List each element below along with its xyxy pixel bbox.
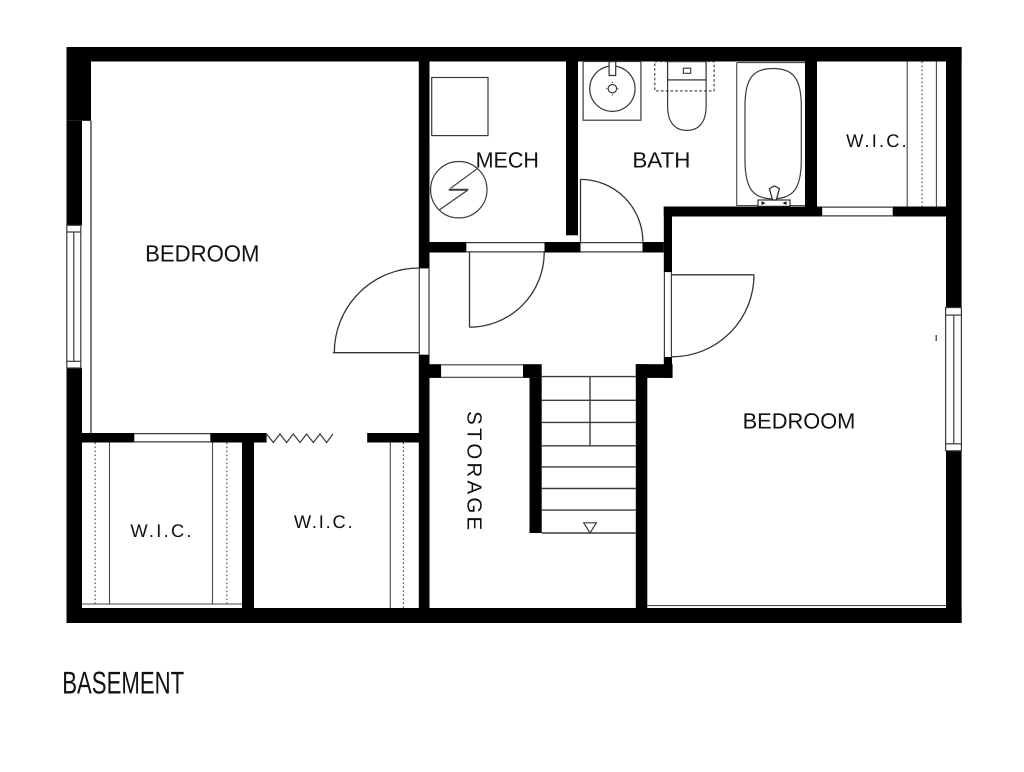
svg-text:MECH: MECH — [476, 147, 539, 172]
svg-text:BATH: BATH — [632, 147, 690, 172]
svg-text:BEDROOM: BEDROOM — [743, 409, 856, 434]
svg-text:BEDROOM: BEDROOM — [145, 241, 259, 267]
svg-text:W.I.C.: W.I.C. — [130, 520, 191, 541]
svg-text:W.I.C.: W.I.C. — [846, 130, 907, 151]
svg-text:BASEMENT: BASEMENT — [62, 664, 184, 700]
svg-text:STORAGE: STORAGE — [463, 411, 485, 530]
svg-text:W.I.C.: W.I.C. — [294, 511, 353, 532]
